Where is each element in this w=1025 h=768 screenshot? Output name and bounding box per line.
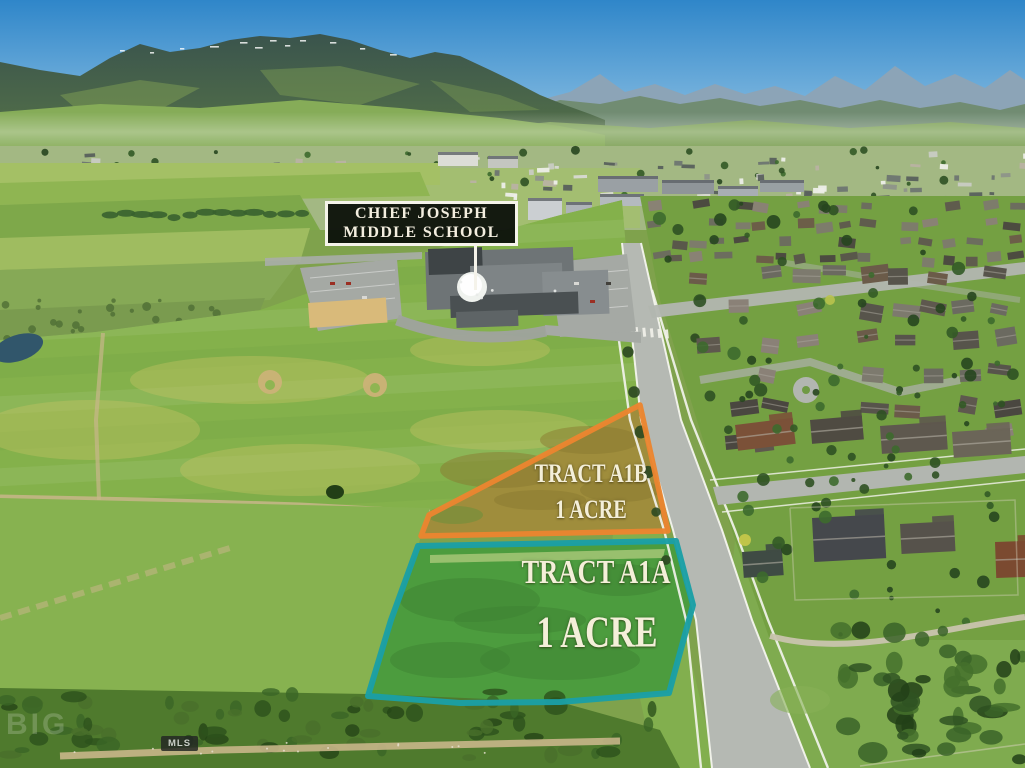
watermark: BIG bbox=[6, 708, 68, 742]
school-label-leader-line bbox=[474, 246, 477, 290]
aerial-listing-photo: CHIEF JOSEPH MIDDLE SCHOOL TRACT A1B 1 A… bbox=[0, 0, 1025, 768]
mls-badge: MLS bbox=[161, 736, 198, 751]
tract-a1a-area-label: 1 ACRE bbox=[536, 607, 657, 658]
tract-a1b-area-label: 1 ACRE bbox=[555, 495, 627, 525]
aerial-photo-scene bbox=[0, 0, 1025, 768]
school-label-line1: CHIEF JOSEPH bbox=[355, 205, 488, 224]
school-label: CHIEF JOSEPH MIDDLE SCHOOL bbox=[325, 201, 518, 246]
school-label-line2: MIDDLE SCHOOL bbox=[343, 224, 499, 243]
terrain-layer bbox=[0, 0, 1025, 768]
tract-a1b-name-label: TRACT A1B bbox=[535, 459, 648, 489]
tract-a1a-name-label: TRACT A1A bbox=[521, 554, 670, 592]
